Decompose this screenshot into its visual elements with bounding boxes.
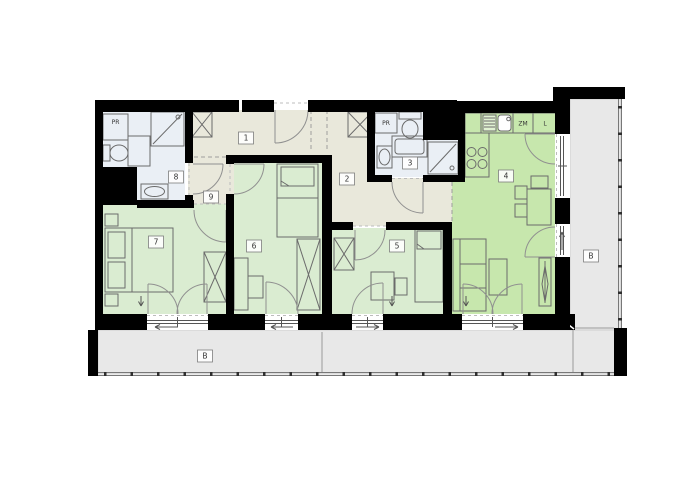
svg-text:B: B	[588, 252, 593, 261]
svg-text:7: 7	[154, 238, 159, 247]
svg-text:9: 9	[209, 193, 214, 202]
balcony-window-kitchen	[555, 134, 570, 198]
balcony-window-room4	[462, 314, 523, 330]
svg-text:B: B	[202, 352, 207, 361]
svg-text:2: 2	[345, 175, 350, 184]
room-label-7: 7	[149, 236, 164, 248]
washer-label: PR	[112, 119, 120, 126]
floor-plan-canvas: PR PR	[0, 0, 700, 500]
room-label-5: 5	[390, 240, 405, 252]
room-label-9: 9	[204, 191, 219, 203]
svg-text:4: 4	[504, 172, 509, 181]
svg-text:1: 1	[244, 134, 249, 143]
balcony-window-room6	[265, 314, 298, 330]
room-label-4: 4	[499, 170, 514, 182]
dishwasher-label: ZM	[518, 121, 527, 128]
svg-text:8: 8	[174, 173, 179, 182]
floors	[98, 99, 621, 374]
room-label-3: 3	[403, 157, 418, 169]
washer-label: PR	[382, 120, 390, 127]
balcony-label-bottom: B	[198, 350, 213, 362]
svg-text:6: 6	[252, 242, 257, 251]
room-label-6: 6	[247, 240, 262, 252]
svg-text:3: 3	[408, 159, 413, 168]
balcony-label-right: B	[584, 250, 599, 262]
room-label-1: 1	[239, 132, 254, 144]
balcony-bottom-floor	[98, 330, 621, 374]
room-label-2: 2	[340, 173, 355, 185]
room-label-8: 8	[169, 171, 184, 183]
floor-plan: PR PR	[0, 0, 700, 500]
living-4-floor	[452, 110, 557, 316]
svg-text:5: 5	[395, 242, 400, 251]
